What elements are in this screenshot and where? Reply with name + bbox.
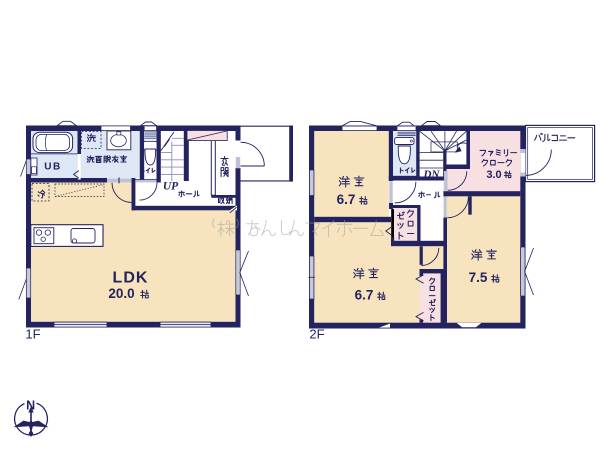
svg-text:DN: DN (423, 169, 441, 181)
svg-text:7.5: 7.5 (469, 270, 488, 285)
svg-text:2F: 2F (309, 327, 324, 342)
svg-text:6.7: 6.7 (355, 288, 374, 303)
svg-text:1F: 1F (25, 327, 40, 342)
svg-text:UP: UP (163, 181, 179, 193)
svg-text:LDK: LDK (113, 270, 149, 287)
svg-text:3.0: 3.0 (486, 169, 501, 181)
svg-text:20.0: 20.0 (108, 286, 134, 301)
svg-text:UB: UB (44, 162, 61, 173)
svg-text:6.7: 6.7 (337, 192, 356, 207)
